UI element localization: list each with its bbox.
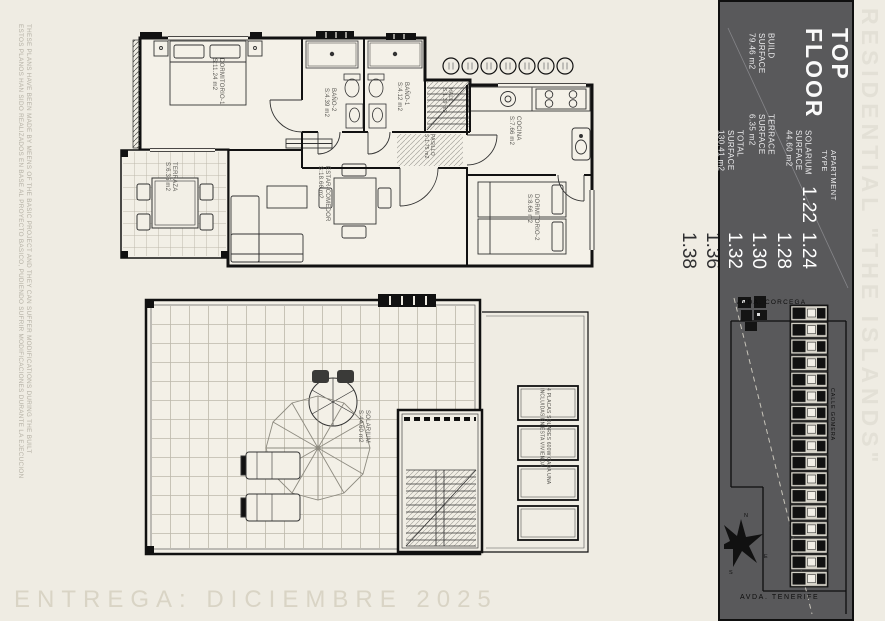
room-label-pasillo: PASILLO S:1.75 m2 [423,134,435,168]
room-label-cocina: COCINA S:7.66 m2 [507,116,521,170]
brand-title: RESIDENTIAL "THE ISLANDS" [856,8,883,614]
room-label-dormitorio-2: DORMITORIO-2 S:8.66 m2 [525,194,539,258]
pergola-strip [378,294,436,307]
housing-row [790,305,828,587]
apartment-number-1-32: 1.32 [723,232,745,278]
compass-n: N [744,513,748,519]
floor-title: TOP FLOOR [801,28,853,140]
room-label-bano-1: BAÑO-1 S:4.12 m2 [395,82,409,130]
plan-sheet: { "sheet": { "background": "#efece3", "p… [0,0,885,621]
compass-s: S [729,570,733,576]
street-label-avda-tenerife: AVDA. TENERIFE [740,594,819,601]
delivery-text: ENTREGA: DICIEMBRE 2025 [14,586,498,614]
room-label-estar-comedor: ESTAR-COMEDOR S:18.66 m2 [316,166,330,232]
room-label-bano-2: BAÑO-2 S:4.39 m2 [322,88,336,136]
apartment-number-1-24: 1.24 [797,232,819,278]
solarium-stair-enclosure [398,410,482,552]
apartment-number-1-22: 1.22 [797,186,819,232]
room-label-terraza: TERRAZA S:6.35 m2 [163,162,177,222]
solar-panels-note: 4 PLACAS SOLARES 600W CADA UNA INCLUIDAS… [538,388,551,540]
room-label-dormitorio-1: DORMITORIO-1 S:11.24 m2 [210,58,224,118]
terrace-surface-block: TERRACE SURFACE 6.35 m2 [747,114,776,216]
apartment-number-1-28: 1.28 [772,232,794,278]
room-label-solarium: SOLARIUM S:44.60 m2 [356,410,370,466]
solar-panel-area [482,312,588,552]
disclaimer-line-es: ESTOS PLANOS HAN SIDO REALIZADOS EN BASE… [16,24,24,569]
apartment-number-1-38: 1.38 [677,232,699,278]
compass-e: E [764,554,768,560]
build-surface-block: BUILD SURFACE 79.46 m2 [747,33,776,115]
disclaimer-text: THESE PLANS HAVE BEEN MADE BY MEENS OF T… [16,24,32,569]
street-label-calle-gomera: CALLE GOMERA [829,388,835,480]
floor-plan-drawing [113,20,595,272]
solarium-table [309,370,357,426]
apartment-type-label: APARTMENT TYPE [820,150,838,242]
street-label-avda-corcega: AVDA. CORCEGA [737,299,806,306]
compass-rose: N E S W [724,513,768,576]
hatched-wall-band [133,40,140,148]
total-surface-block: TOTAL SURFACE 130.41 m2 [716,130,745,224]
apartment-number-1-30: 1.30 [747,232,769,278]
circled-markers [443,58,573,74]
disclaimer-line-en: THESE PLANS HAVE BEEN MADE BY MEENS OF T… [24,24,32,569]
room-label-hall: HALL S:1.39 m2 [441,88,453,130]
